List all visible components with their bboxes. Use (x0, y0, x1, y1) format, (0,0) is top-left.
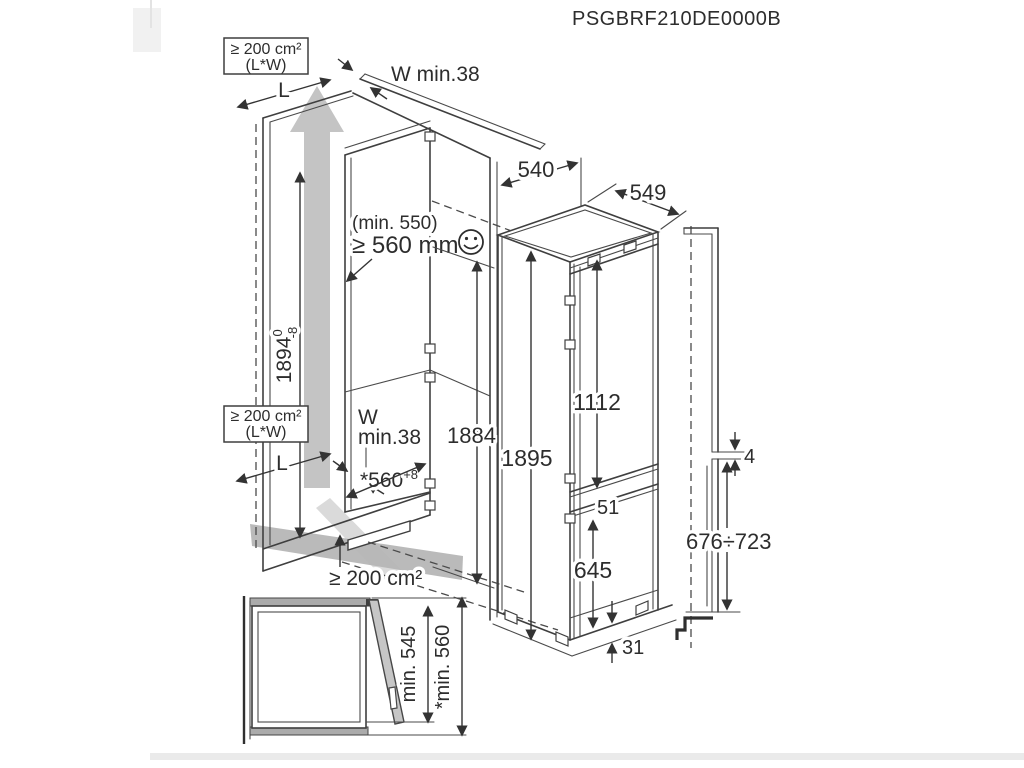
dim-51-label: 51 (597, 497, 619, 519)
dim-31-label: 31 (622, 637, 644, 659)
vent-top-line2: (L*W) (246, 57, 287, 74)
fridge-installation-diagram: PSGBRF210DE0000B (0, 0, 1024, 768)
panel-section-view: 4 676÷723 (677, 226, 772, 648)
dim-min560-label: *min. 560 (432, 625, 454, 710)
depth-min-label: ≥ 560 mm (352, 232, 459, 259)
vent-area-box-mid: ≥ 200 cm² (L*W) (224, 406, 308, 442)
dim-1895-label: 1895 (501, 445, 552, 471)
appliance-linework (493, 205, 676, 656)
smiley-face-icon (459, 230, 483, 254)
dim-4-label: 4 (744, 446, 755, 468)
vent-mid-line2: (L*W) (246, 424, 287, 441)
dim-L-top-label: L (278, 79, 290, 102)
plan-top-view: min. 545 *min. 560 (244, 596, 466, 744)
vent-mid-line1: ≥ 200 cm² (230, 408, 302, 425)
gap-arrow-a (338, 59, 352, 70)
model-number-title: PSGBRF210DE0000B (572, 8, 781, 30)
installation-diagram-page: PSGBRF210DE0000B (0, 0, 1024, 768)
dim-1112-label: 1112 (573, 389, 621, 415)
dim-549-label: 549 (630, 180, 667, 205)
dim-676-723-label: 676÷723 (686, 529, 772, 554)
appliance-isometric-view: 549 1895 1112 51 645 31 (493, 180, 686, 663)
dim-w-min38-top-label: W min.38 (391, 63, 480, 86)
vent-top-line1: ≥ 200 cm² (230, 41, 302, 58)
niche-isometric-view: ≥ 200 cm² (L*W) L W min.38 (min. 550) ≥ … (224, 38, 581, 630)
gap-arrow-b (371, 88, 387, 99)
artifact-patch (133, 8, 161, 52)
dim-1894-label: 18940-8 (270, 327, 300, 384)
plan-niche-outer (252, 606, 366, 728)
dim-540-label: 540 (518, 157, 555, 182)
dim-min545-label: min. 545 (398, 626, 420, 703)
vent-area-box-top: ≥ 200 cm² (L*W) (224, 38, 308, 74)
plan-top-wall (250, 598, 370, 606)
dim-645-label: 645 (574, 557, 612, 583)
depth-note-label: (min. 550) (352, 213, 438, 234)
artifact-bottom-band (150, 753, 1024, 760)
bottom-vent-label: ≥ 200 cm² (329, 567, 422, 590)
plan-door-handle (389, 687, 397, 709)
dim-L-mid-label: L (276, 452, 288, 475)
dim-w-mid-label-line2: min.38 (358, 426, 421, 449)
dim-1884-label: 1884 (447, 423, 496, 448)
